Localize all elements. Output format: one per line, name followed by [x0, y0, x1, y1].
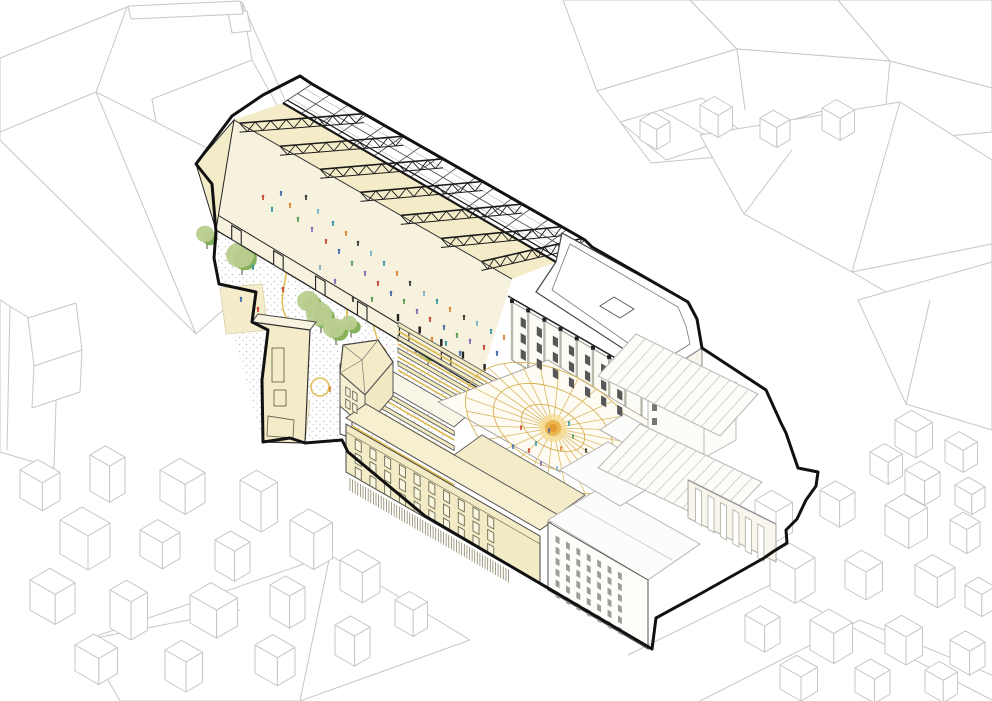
- illustration-canvas: [0, 0, 992, 701]
- context-buildings-bottom-right: [628, 481, 992, 701]
- context-buildings-right: [858, 262, 992, 515]
- context-buildings-left: [0, 300, 82, 468]
- architectural-axonometric-illustration: [0, 0, 992, 701]
